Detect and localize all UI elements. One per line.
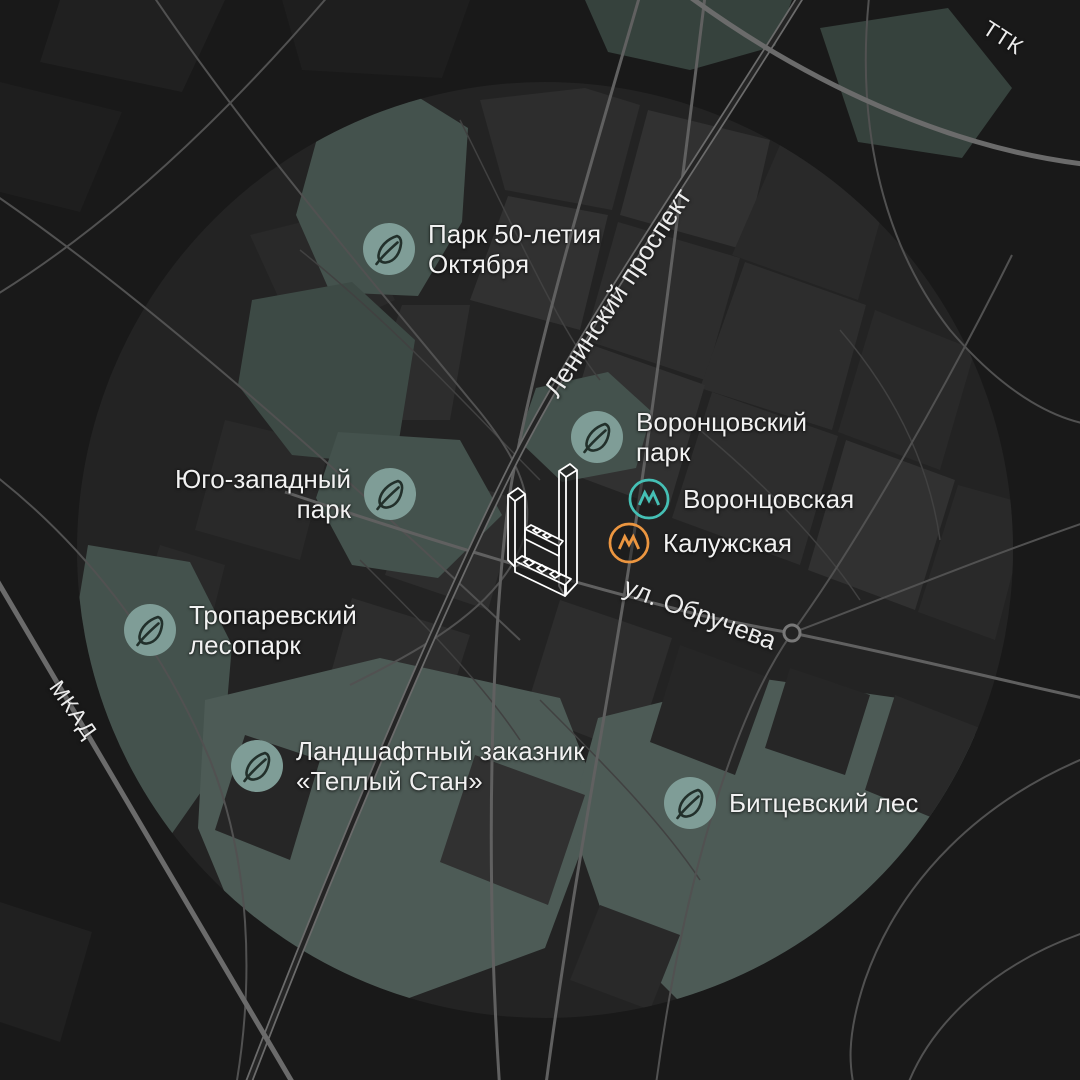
metro-station-label: Калужская (663, 528, 792, 558)
metro-icon (627, 477, 671, 521)
metro-station-vorontsovskaya: Воронцовская (627, 477, 854, 521)
park-label-line2: «Теплый Стан» (296, 766, 585, 796)
map-base-layer (0, 0, 1080, 1080)
park-label-line1: Юго-западный (175, 464, 351, 494)
park-label-line1: Битцевский лес (729, 788, 918, 818)
road-junction-node (784, 625, 800, 641)
park-label-troparevsky: Тропаревский лесопарк (124, 600, 357, 660)
metro-station-label: Воронцовская (683, 484, 854, 514)
park-label-line2: парк (175, 494, 351, 524)
park-label-line1: Парк 50-летия (428, 219, 601, 249)
leaf-icon (231, 740, 283, 792)
park-label-teply-stan: Ландшафтный заказник «Теплый Стан» (231, 736, 585, 796)
park-label-park-50-letiya: Парк 50-летия Октября (363, 219, 601, 279)
leaf-icon (571, 411, 623, 463)
park-label-line1: Ландшафтный заказник (296, 736, 585, 766)
metro-station-kaluzhskaya: Калужская (607, 521, 792, 565)
park-label-line2: лесопарк (189, 630, 357, 660)
leaf-icon (363, 223, 415, 275)
leaf-icon (664, 777, 716, 829)
park-label-yugo-zapadny: Юго-западный парк (175, 464, 416, 524)
park-label-vorontsovsky: Воронцовский парк (571, 407, 807, 467)
leaf-icon (124, 604, 176, 656)
park-label-line1: Воронцовский (636, 407, 807, 437)
metro-icon (607, 521, 651, 565)
map-canvas: Парк 50-летия Октября Воронцовский парк … (0, 0, 1080, 1080)
leaf-icon (364, 468, 416, 520)
park-label-line2: парк (636, 437, 807, 467)
park-label-line1: Тропаревский (189, 600, 357, 630)
park-label-bitsevsky: Битцевский лес (664, 777, 918, 829)
park-label-line2: Октября (428, 249, 601, 279)
